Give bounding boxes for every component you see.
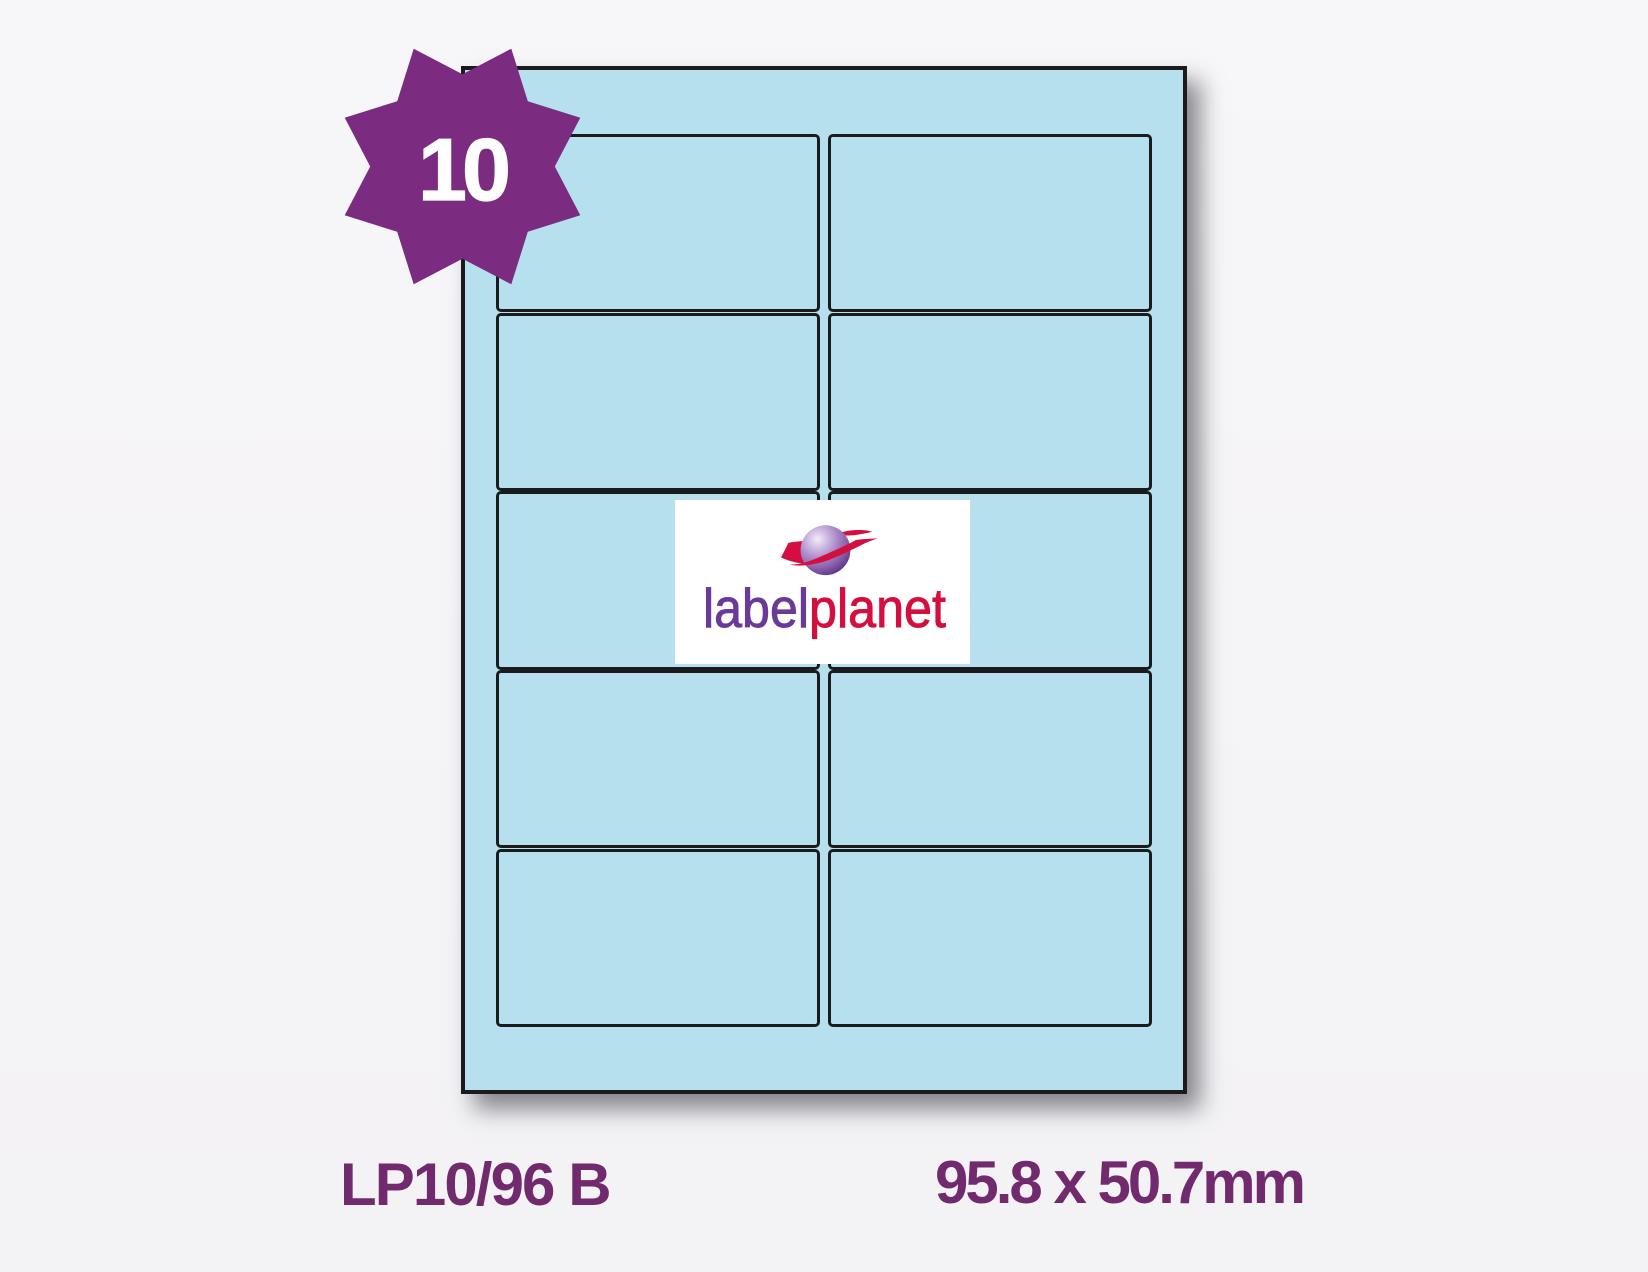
svg-text:10: 10 <box>418 120 508 219</box>
svg-text:labelplanet: labelplanet <box>703 577 946 639</box>
